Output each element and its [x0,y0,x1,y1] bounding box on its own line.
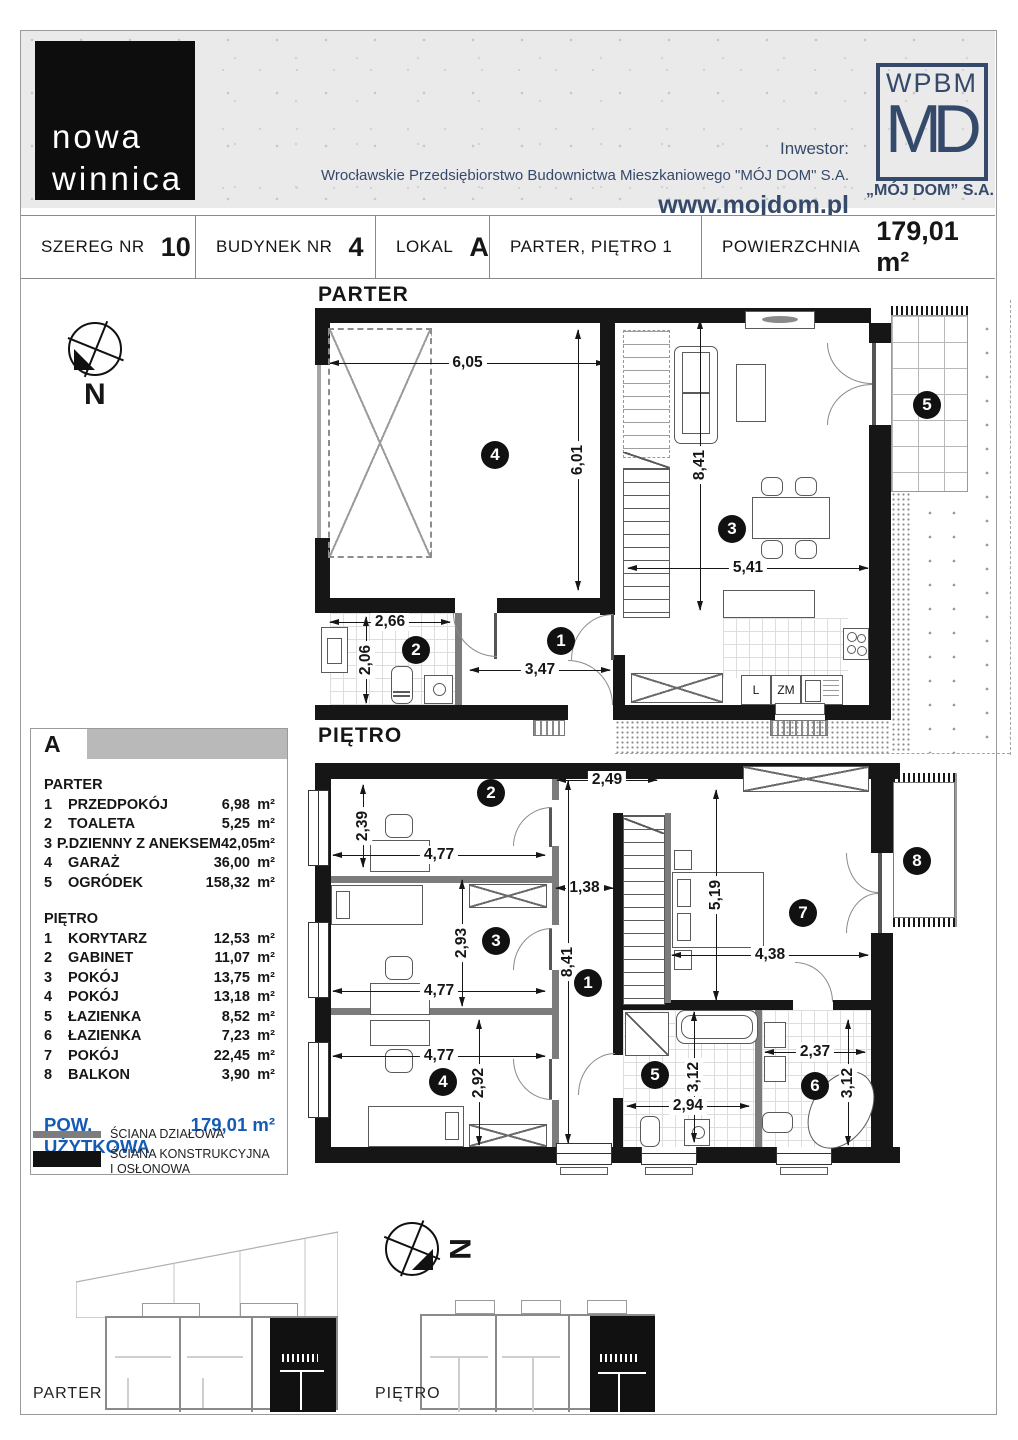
site-highlighted-unit [590,1316,655,1412]
shower [625,1012,669,1056]
site-unit-divider [568,1316,570,1412]
wall [613,1008,623,1055]
site-dormer [142,1303,200,1317]
wall [497,598,615,613]
szereg-label: SZEREG NR [41,237,145,257]
stairs-upper-flight [623,330,670,458]
cell-lokal: LOKAL A [376,216,490,278]
wc-line [393,695,410,697]
unit-letter: A [31,729,87,759]
garden-area [968,308,1010,753]
room-badge-garaz: 4 [481,441,509,469]
sofa [674,346,718,444]
room-badge-ogrodek: 5 [913,391,941,419]
room-number: 5 [44,874,68,894]
window-sill [780,1167,828,1175]
fridge-cabinet: L [741,675,771,705]
site-room-line [598,1372,646,1374]
window [308,1042,329,1118]
washbasin [321,627,348,673]
burner [847,645,856,654]
site-unit-divider [495,1316,497,1412]
wall [613,813,623,1008]
toilet-wc [640,1116,660,1147]
room-area-unit: m² [250,1027,275,1047]
room-number: 7 [44,1047,68,1067]
partition-wall [552,1100,559,1147]
compass-icon [385,1222,439,1276]
wall [600,323,615,615]
wardrobe [631,673,723,703]
toilet-wc [762,1112,793,1133]
room-badge-gabinet: 2 [477,779,505,807]
kitchen-floor [723,618,848,678]
office-chair [385,1049,413,1073]
room-row: 6 ŁAZIENKA 7,23 m² [44,1027,275,1047]
drainer [823,680,839,700]
kondygnacje-label: PARTER, PIĘTRO 1 [510,237,672,257]
window [556,1143,612,1165]
dim-bath5-height: 3,12 [694,1012,695,1142]
legend-section-title: PIĘTRO [44,910,275,930]
dishwasher-label: ZM [777,683,794,697]
plot-boundary [615,753,1010,754]
room-number: 2 [44,949,68,969]
room-name: P.DZIENNY Z ANEKSEM [57,835,221,855]
investor-block: Inwestor: Wrocławskie Przedsiębiorstwo B… [321,139,849,220]
french-door [872,343,876,425]
dim-gabinet-width: 4,77 [333,855,545,856]
room-name: POKÓJ [68,1047,198,1067]
room-row: 4 GARAŻ 36,00 m² [44,854,275,874]
cell-budynek: BUDYNEK NR 4 [196,216,376,278]
site-dormer [521,1300,561,1314]
terrace-edge-hatch [891,306,968,315]
pillow [677,913,691,941]
room-number: 3 [44,835,57,855]
dining-table [752,497,830,539]
room-area: 3,90 [198,1066,250,1086]
wall [613,1098,623,1147]
site-room-line [502,1356,560,1358]
room-area: 42,05 [221,835,257,855]
wall [869,323,891,343]
north-letter: N [442,1238,476,1260]
room-row: 5 OGRÓDEK 158,32 m² [44,874,275,894]
partition-wall-label: ŚCIANA DZIAŁOWA [110,1127,270,1142]
room-row: 4 POKÓJ 13,18 m² [44,988,275,1008]
site-garden-trapezoid [76,1230,338,1318]
pietro-room-list: 1 KORYTARZ 12,53 m² 2 GABINET 11,07 m² 3 [44,930,275,1086]
stairs-lower-flight [623,468,670,618]
room-name: ŁAZIENKA [68,1008,198,1028]
room-number: 6 [44,1027,68,1047]
balcony-door [878,853,882,933]
dim-bath6-width: 2,37 [765,1052,865,1053]
parter-room-list: 1 PRZEDPOKÓJ 6,98 m² 2 TOALETA 5,25 m² 3 [44,796,275,894]
room-number: 3 [44,969,68,989]
entrance-steps [770,720,828,736]
stairs-break-line [623,452,670,468]
room-badge-przedpokoj: 1 [547,627,575,655]
dim-toilet-width: 2,66 [330,622,450,623]
north-letter: N [84,378,106,412]
room-area-unit: m² [250,988,275,1008]
room-area: 36,00 [198,854,250,874]
partition-wall [552,970,559,1059]
site-room-line [187,1356,243,1358]
washing-machine [684,1119,710,1146]
office-chair [385,956,413,980]
window [308,790,329,866]
cell-kondygnacje: PARTER, PIĘTRO 1 [490,216,702,278]
pillow [677,879,691,907]
investor-company: Wrocławskie Przedsiębiorstwo Budownictwa… [321,167,849,184]
site-room-line [280,1370,324,1372]
washbasin [764,1056,786,1082]
wall [315,308,613,323]
room-area: 13,75 [198,969,250,989]
compass-needle [412,1249,433,1270]
room-badge-korytarz: 1 [574,969,602,997]
site-room-line [618,1372,620,1412]
site-unit-divider [179,1318,181,1412]
office-chair [385,814,413,838]
wall [613,655,625,705]
desk [370,1020,430,1046]
compass-icon [68,322,122,376]
wc-line [393,691,410,693]
burner [857,646,867,656]
cell-powierzchnia: POWIERZCHNIA 179,01 m² [702,216,995,278]
wall [315,705,568,720]
room-name: GABINET [68,949,198,969]
cell-szereg: SZEREG NR 10 [21,216,196,278]
moj-dom-caption: „MÓJ DOM” S.A. [858,182,1002,200]
room-number: 4 [44,854,68,874]
room-area: 22,45 [198,1047,250,1067]
powierzchnia-label: POWIERZCHNIA [722,237,860,257]
compass-needle [74,349,95,370]
room-name: PRZEDPOKÓJ [68,796,198,816]
washing-machine [424,675,453,704]
dim-room3-width: 4,77 [333,991,545,992]
logo-line1: nowa [52,116,195,158]
toilet-wc [391,666,413,704]
room-row: 1 PRZEDPOKÓJ 6,98 m² [44,796,275,816]
room-badge-lazienka5: 5 [641,1061,669,1089]
bed-single [368,1106,464,1147]
room-name: KORYTARZ [68,930,198,950]
wardrobe [743,766,869,792]
bed-single [331,885,423,925]
wall [871,779,893,853]
washer-drum [433,683,446,696]
coffee-table [736,364,766,422]
legend-header: A [31,729,287,762]
room-row: 5 ŁAZIENKA 8,52 m² [44,1008,275,1028]
site-dormer [455,1300,495,1314]
tv [762,316,798,323]
room-number: 8 [44,1066,68,1086]
room-area-unit: m² [250,1047,275,1067]
room-row: 1 KORYTARZ 12,53 m² [44,930,275,950]
room-area-unit: m² [250,796,275,816]
site-dormer [240,1303,298,1317]
room-area: 11,07 [198,949,250,969]
dim-bath5-width: 2,94 [627,1106,749,1107]
burner [857,634,866,643]
partition-wall [665,813,671,1003]
room-area-unit: m² [250,874,275,894]
site-highlighted-unit [270,1318,336,1412]
partition-wall [331,1008,552,1015]
dim-living-width: 5,41 [628,568,868,569]
partition-wall-swatch [33,1131,101,1138]
room-number: 5 [44,1008,68,1028]
room-number: 4 [44,988,68,1008]
entrance-sill [775,703,825,715]
chair [795,477,817,496]
room-area-unit: m² [250,930,275,950]
wall [825,705,871,720]
kitchen-counter [723,590,815,618]
info-bar: SZEREG NR 10 BUDYNEK NR 4 LOKAL A PARTER… [21,215,995,279]
window-sill [560,1167,608,1175]
wpbm-md-logo: WPBM MD [876,63,988,181]
dim-room7-width: 4,38 [672,955,868,956]
room-name: GARAŻ [68,854,198,874]
room-row: 2 GABINET 11,07 m² [44,949,275,969]
sink-bowl [805,680,821,702]
site-dormer [587,1300,627,1314]
sofa-cushion [682,352,710,393]
dim-living-height: 8,41 [700,320,701,610]
dim-room3-height: 2,93 [462,880,463,1006]
room-name: OGRÓDEK [68,874,198,894]
dim-toilet-height: 2,06 [366,617,367,703]
balcony-rail [955,773,957,927]
kitchen-sink-unit [801,675,843,705]
dim-corridor-top-width: 2,49 [557,780,657,781]
lokal-value: A [469,232,489,263]
room-row: 7 POKÓJ 22,45 m² [44,1047,275,1067]
garden-area [911,492,968,753]
floor-plan-sheet: Inwestor: Wrocławskie Przedsiębiorstwo B… [0,0,1018,1440]
site-room-line [458,1356,460,1412]
dim-garage-width: 6,05 [330,363,605,364]
room-area-unit: m² [250,815,275,835]
area-legend: A PARTER 1 PRZEDPOKÓJ 6,98 m² 2 TOALETA [30,728,288,1175]
site-plan-parter [105,1316,338,1410]
parter-plan-title: PARTER [318,283,409,307]
wall [613,705,775,720]
room-area-unit: m² [250,949,275,969]
room-area-unit: m² [250,969,275,989]
chair [795,540,817,559]
dim-corridor-mid-width: 1,38 [556,888,613,889]
site-stairs-mark [600,1354,638,1362]
site-room-line [300,1370,302,1410]
dim-room4-width: 4,77 [333,1056,545,1057]
site-room-line [127,1378,129,1408]
room-number: 1 [44,796,68,816]
fridge-label: L [753,683,760,697]
room-row: 8 BALKON 3,90 m² [44,1066,275,1086]
basin-bowl [327,638,342,664]
tv-cabinet [745,311,815,329]
structural-wall-label: ŚCIANA KONSTRUKCYJNA I OSŁONOWA [110,1147,270,1177]
stove [843,628,869,660]
dim-garage-height: 6,01 [578,330,579,590]
site-unit-divider [251,1318,253,1412]
dim-room7-height: 5,19 [716,790,717,1000]
room-name: BALKON [68,1066,198,1086]
lokal-label: LOKAL [396,237,453,257]
pietro-plan-title: PIĘTRO [318,724,402,748]
overview-pietro-label: PIĘTRO [375,1385,441,1403]
burner [847,632,857,642]
sofa-cushion [682,393,710,434]
room-number: 2 [44,815,68,835]
wall [833,1000,875,1010]
szereg-value: 10 [161,232,191,263]
room-number: 1 [44,930,68,950]
plot-boundary [1010,300,1011,755]
dim-bath6-height: 3,12 [848,1020,849,1145]
dim-corridor-height: 8,41 [568,781,569,1143]
room-name: TOALETA [68,815,198,835]
balcony-edge-hatch [893,773,955,782]
site-room-line [115,1356,171,1358]
gravel-path [615,720,891,753]
investor-label: Inwestor: [321,139,849,159]
dim-room4-height: 2,92 [479,1020,480,1145]
room-area-unit: m² [250,1066,275,1086]
stairs [623,815,665,1005]
wardrobe [469,884,547,908]
powierzchnia-value: 179,01 m² [876,216,995,278]
entrance-steps [533,720,565,736]
room-badge-pokoj-dzienny: 3 [718,515,746,543]
room-badge-pokoj7: 7 [789,899,817,927]
dishwasher-cabinet: ZM [771,675,801,705]
window [308,922,329,998]
logo-line2: winnica [52,158,195,200]
washbasin [764,1022,786,1048]
room-name: POKÓJ [68,969,198,989]
room-area-unit: m² [250,1008,275,1028]
room-area: 158,32 [198,874,250,894]
room-area: 5,25 [198,815,250,835]
site-room-line [532,1356,534,1412]
partition-wall [331,876,552,883]
dim-hall-width: 3,47 [470,670,610,671]
room-area: 7,23 [198,1027,250,1047]
wall [869,425,891,720]
room-area: 12,53 [198,930,250,950]
budynek-label: BUDYNEK NR [216,237,332,257]
room-area: 6,98 [198,796,250,816]
room-row: 2 TOALETA 5,25 m² [44,815,275,835]
room-area-unit: m² [250,854,275,874]
chair [761,477,783,496]
stairs-break-line [623,818,665,834]
window-sill [645,1167,693,1175]
site-stairs-mark [282,1354,318,1362]
md-monogram: MD [874,98,984,160]
wall [315,598,455,613]
room-badge-pokoj4: 4 [429,1068,457,1096]
nightstand [674,850,692,870]
pillow [445,1112,459,1140]
nowa-winnica-logo: nowa winnica [35,41,195,200]
room-area: 13,18 [198,988,250,1008]
chair [761,540,783,559]
room-badge-pokoj3: 3 [482,927,510,955]
structural-wall-swatch [33,1151,101,1167]
bathtub [676,1010,758,1044]
site-room-line [202,1378,204,1408]
room-badge-balkon: 8 [903,847,931,875]
room-row: 3 P.DZIENNY Z ANEKSEM 42,05 m² [44,835,275,855]
wall [871,933,893,1163]
wall [613,308,871,323]
site-plan-pietro [420,1314,655,1410]
room-area: 8,52 [198,1008,250,1028]
pillow [336,891,350,919]
balcony-edge-hatch [893,918,955,927]
room-badge-toaleta: 2 [402,636,430,664]
garage-door [317,365,321,538]
gravel-path [891,492,911,753]
room-badge-lazienka6: 6 [801,1072,829,1100]
overview-parter-label: PARTER [33,1385,102,1403]
legend-section-title: PARTER [44,776,275,796]
budynek-value: 4 [348,232,363,263]
room-row: 3 POKÓJ 13,75 m² [44,969,275,989]
room-area-unit: m² [257,835,275,855]
room-name: ŁAZIENKA [68,1027,198,1047]
room-name: POKÓJ [68,988,198,1008]
